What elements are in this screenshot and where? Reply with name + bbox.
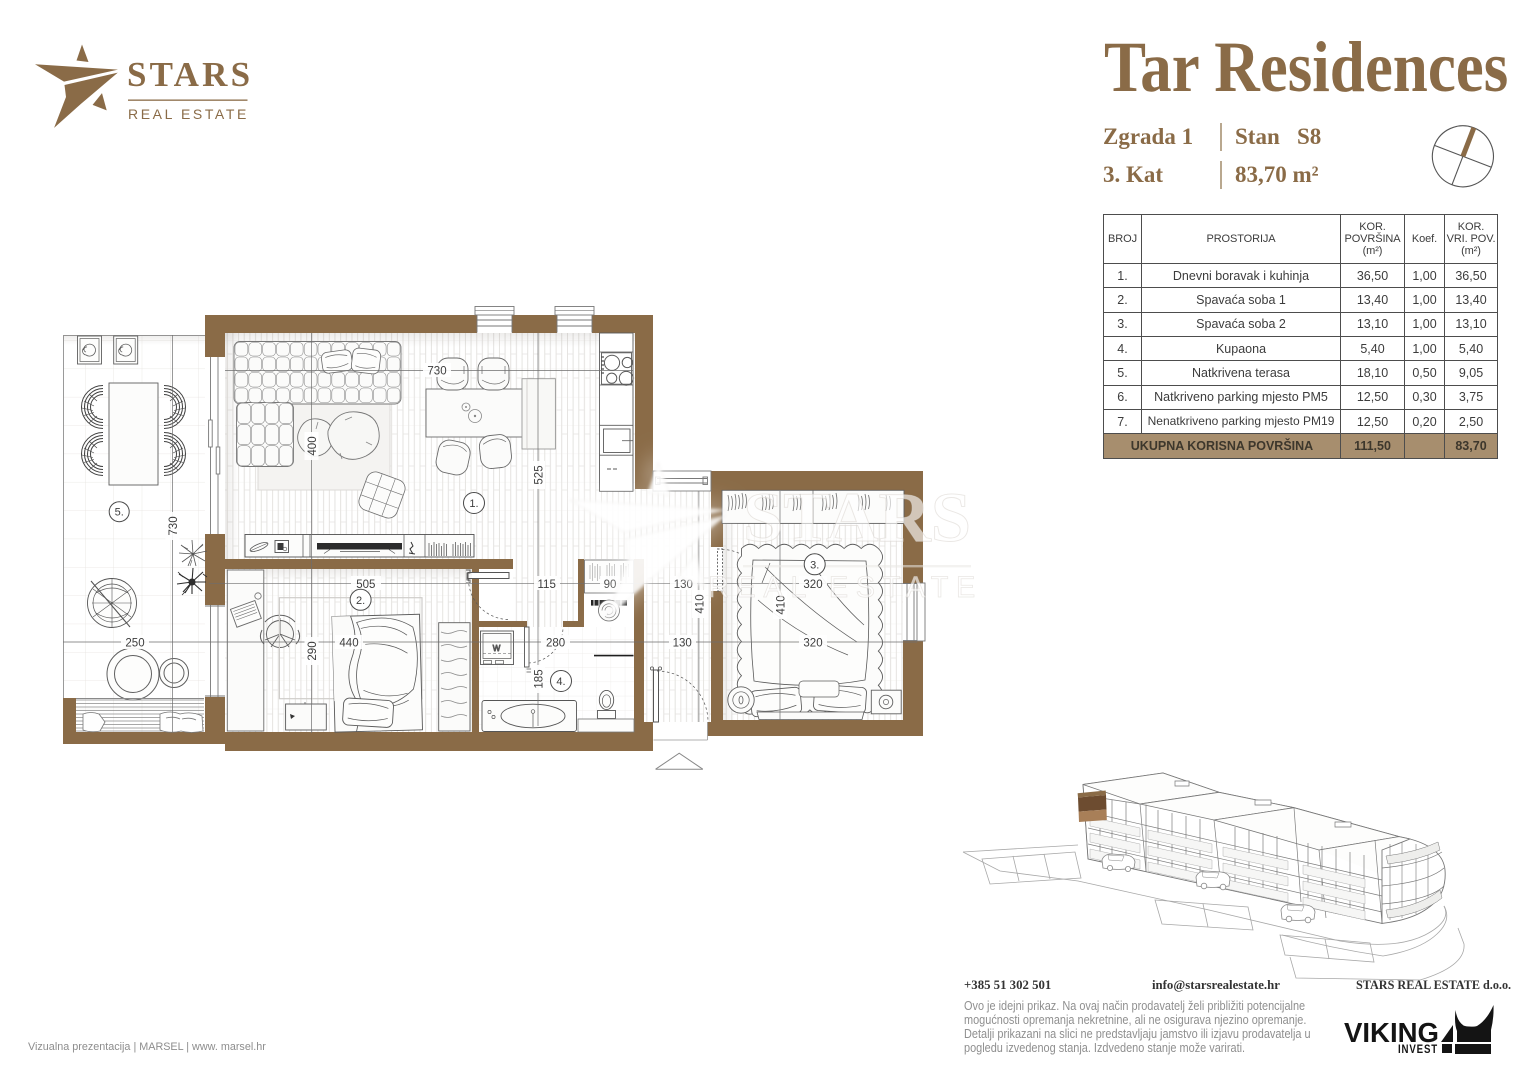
svg-text:280: 280 [546,638,565,650]
svg-text:730: 730 [168,516,180,535]
svg-text:130: 130 [673,638,692,650]
svg-text:730: 730 [427,366,446,378]
svg-text:3.: 3. [810,559,819,571]
svg-text:320: 320 [803,638,822,650]
svg-text:290: 290 [307,641,319,660]
svg-text:INVEST: INVEST [1398,1044,1438,1056]
svg-text:440: 440 [339,638,358,650]
svg-text:250: 250 [125,638,144,650]
svg-text:400: 400 [307,436,319,455]
svg-text:2.: 2. [356,595,365,607]
svg-text:4.: 4. [556,676,565,688]
svg-text:1.: 1. [469,498,478,510]
svg-text:525: 525 [534,465,546,484]
svg-text:W: W [493,644,501,653]
svg-text:5.: 5. [115,507,124,519]
svg-text:STARS: STARS [743,479,971,557]
svg-text:185: 185 [534,669,546,688]
svg-text:REAL ESTATE: REAL ESTATE [708,571,983,604]
svg-text:115: 115 [538,579,556,591]
svg-text:410: 410 [694,594,706,613]
